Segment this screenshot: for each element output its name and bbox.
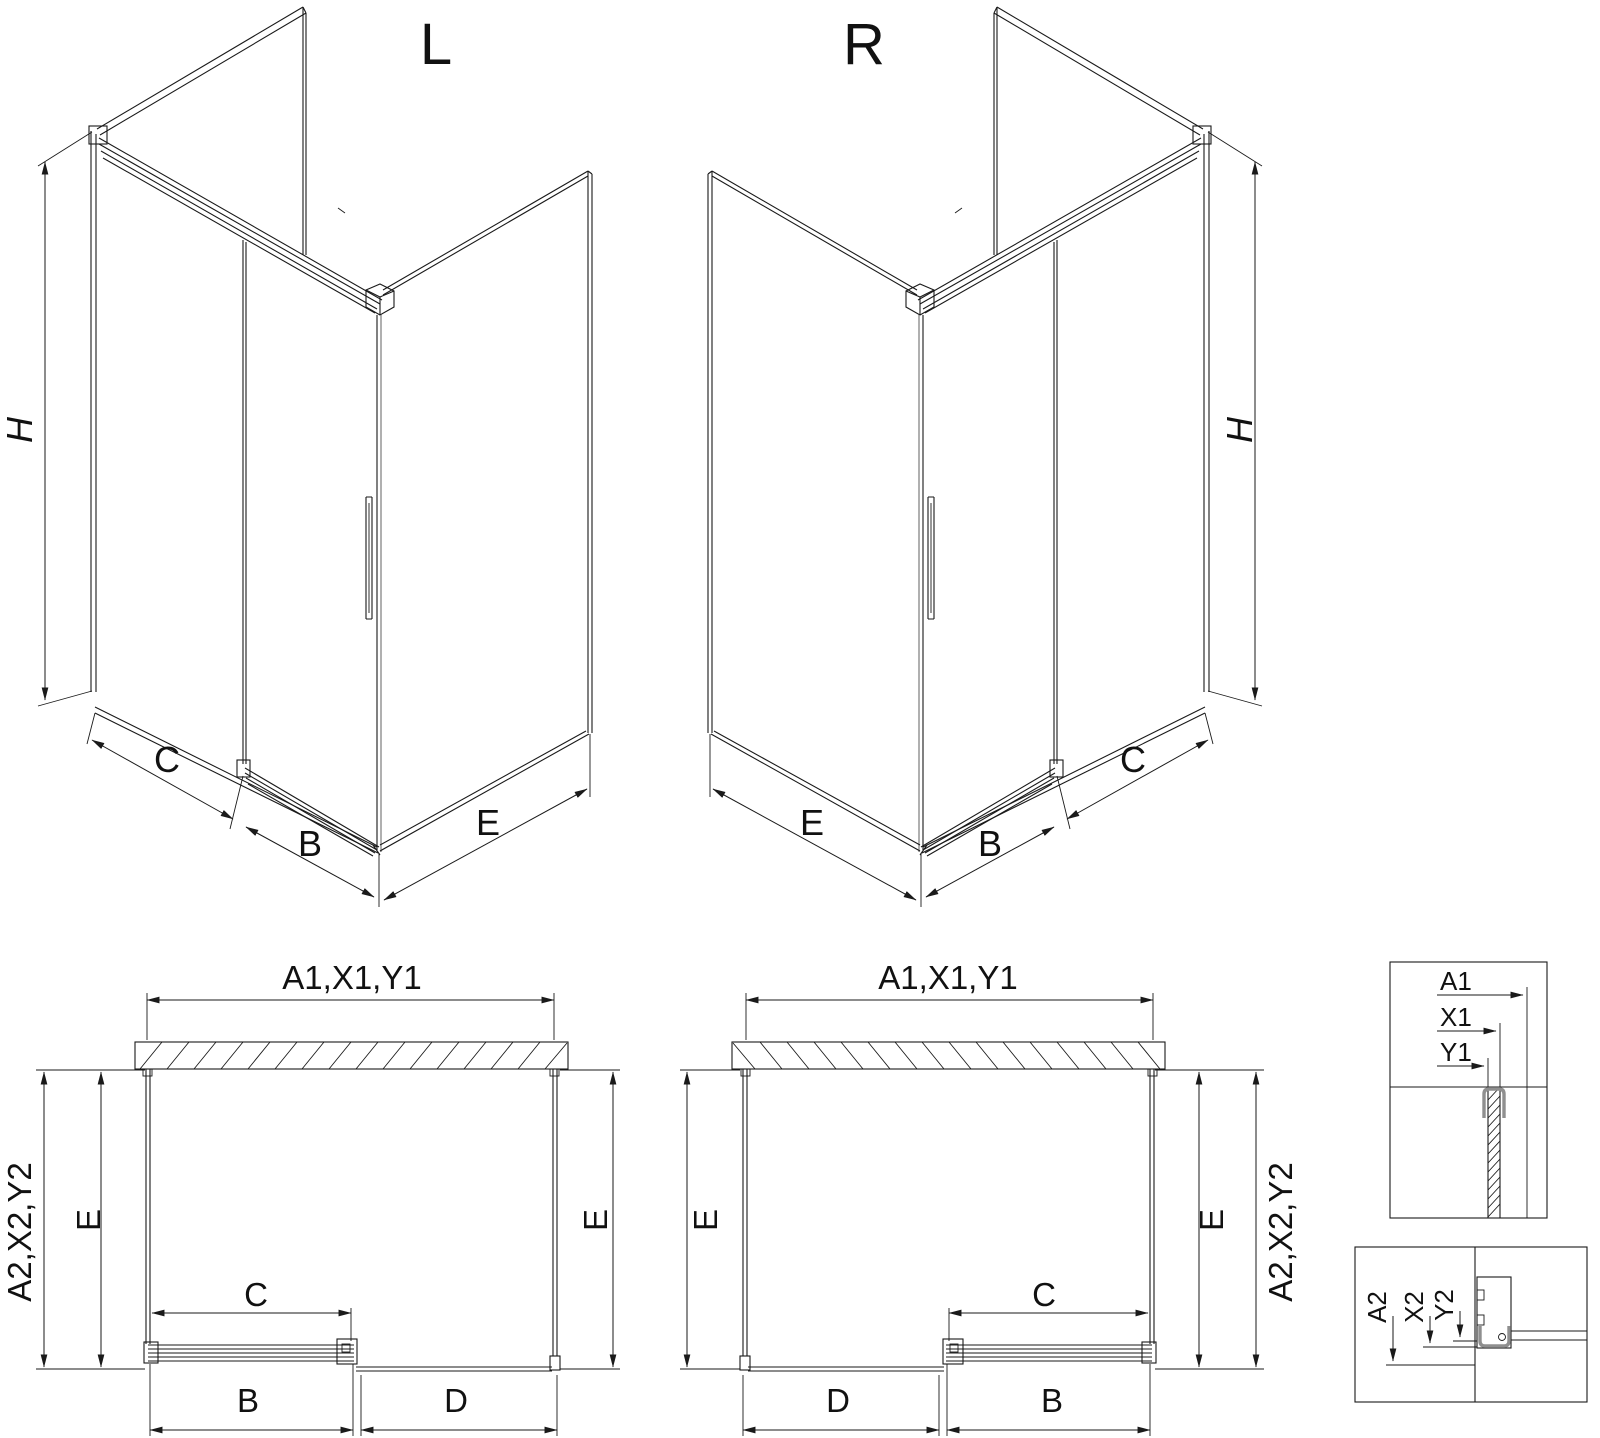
plan-right-dim-opening: C: [1032, 1276, 1056, 1313]
iso-left-dim-side: E: [476, 802, 500, 843]
plan-right-dim-depth-right: E: [1193, 1209, 1230, 1231]
iso-left-title: L: [420, 12, 452, 77]
iso-left-figure: [38, 7, 592, 907]
detail-bottom-dim-x2: X2: [1399, 1291, 1429, 1323]
plan-left-figure: [36, 993, 620, 1436]
plan-right-dim-wall: A1,X1,Y1: [878, 959, 1017, 996]
iso-left-dim-height: H: [0, 416, 40, 443]
plan-right-dim-depth-left: E: [687, 1209, 724, 1231]
technical-drawing-page: L H C B E R H C B E A1,X1,Y1 A2,X2,Y2 E …: [0, 0, 1600, 1438]
plan-left-dim-door: B: [237, 1382, 259, 1419]
detail-bottom-section: [1355, 1247, 1587, 1402]
detail-top-dim-x1: X1: [1440, 1002, 1472, 1032]
plan-left-dim-panel: D: [444, 1382, 468, 1419]
detail-bottom-dim-y2: Y2: [1429, 1289, 1459, 1321]
plan-left-dim-wall: A1,X1,Y1: [282, 959, 421, 996]
plan-right-dim-depth-outer: A2,X2,Y2: [1262, 1162, 1299, 1301]
iso-right-title: R: [843, 12, 885, 77]
plan-left-dim-depth-right: E: [577, 1209, 614, 1231]
iso-left-dim-fixed: C: [154, 739, 180, 780]
iso-right-figure: [708, 7, 1262, 907]
plan-left-dim-opening: C: [244, 1276, 268, 1313]
iso-left-dim-door: B: [298, 823, 322, 864]
detail-top-dim-a1: A1: [1440, 966, 1472, 996]
iso-right-dim-height: H: [1219, 416, 1260, 443]
detail-bottom-dim-a2: A2: [1362, 1291, 1392, 1323]
plan-right-dim-door: B: [1041, 1382, 1063, 1419]
detail-top-section: [1390, 962, 1547, 1218]
detail-top-dim-y1: Y1: [1440, 1037, 1472, 1067]
labels-layer: L H C B E R H C B E A1,X1,Y1 A2,X2,Y2 E …: [0, 12, 1472, 1419]
plan-left-dim-depth-outer: A2,X2,Y2: [1, 1162, 38, 1301]
iso-right-dim-fixed: C: [1120, 739, 1146, 780]
plan-right-figure: [680, 993, 1264, 1436]
iso-right-dim-door: B: [978, 823, 1002, 864]
plan-left-dim-depth-left: E: [70, 1209, 107, 1231]
iso-right-dim-side: E: [800, 802, 824, 843]
shower-enclosure-diagram: L H C B E R H C B E A1,X1,Y1 A2,X2,Y2 E …: [0, 0, 1600, 1438]
plan-right-dim-panel: D: [826, 1382, 850, 1419]
